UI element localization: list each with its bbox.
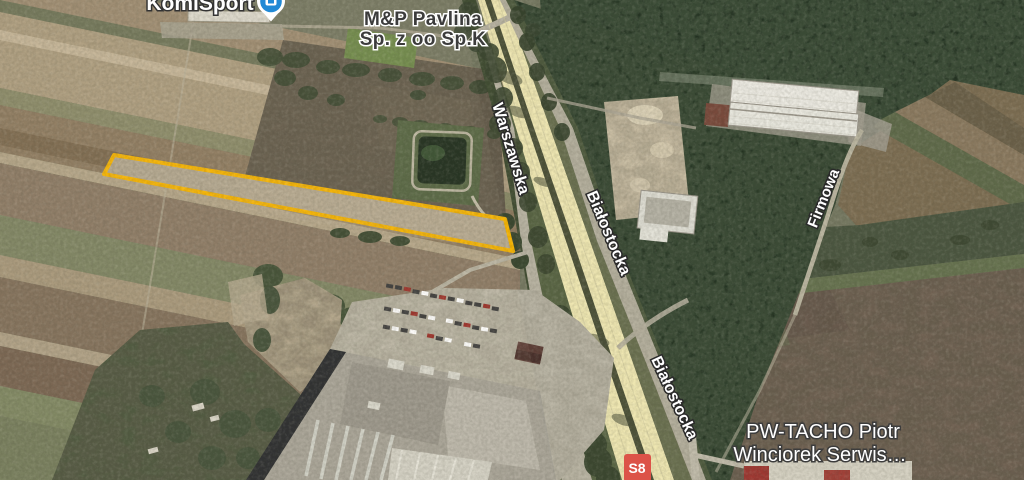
svg-text:M&P Pavlina: M&P Pavlina — [364, 9, 482, 30]
svg-text:Winciorek Serwis…: Winciorek Serwis… — [733, 444, 906, 466]
svg-text:KomiSport: KomiSport — [146, 0, 253, 15]
svg-text:S8: S8 — [628, 460, 645, 476]
svg-text:Sp. z oo Sp.K: Sp. z oo Sp.K — [360, 29, 487, 50]
svg-text:PW-TACHO Piotr: PW-TACHO Piotr — [746, 421, 900, 443]
